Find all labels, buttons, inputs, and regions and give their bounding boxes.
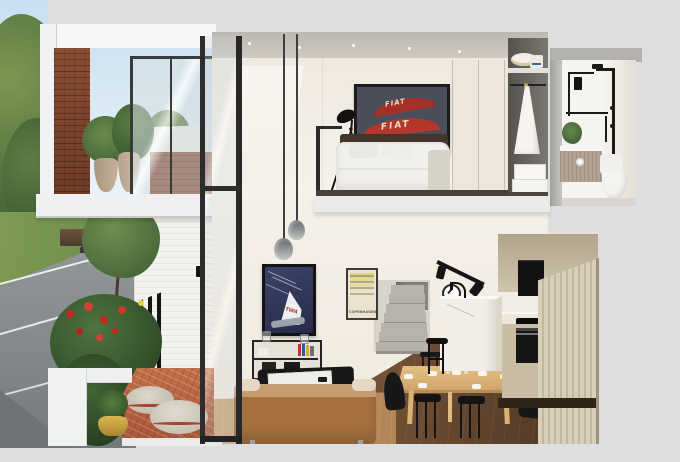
robe-bag-label — [532, 63, 541, 65]
balcony-door-mullion — [170, 56, 172, 198]
bed-throw — [428, 150, 450, 194]
robe-bag — [530, 55, 543, 68]
curtain-wall-glass — [205, 36, 237, 444]
place-setting-6 — [418, 383, 427, 388]
fluted-pantry — [538, 258, 599, 444]
pendant-cord-2 — [283, 34, 285, 240]
mezzanine-railing-post — [316, 126, 320, 196]
pouf-2-stripe — [153, 422, 205, 425]
wardrobe-door-seam-1 — [478, 60, 479, 196]
brass-pot — [98, 416, 128, 436]
place-setting-7 — [472, 384, 481, 389]
red-flower-1 — [66, 310, 74, 318]
kitchen-kickboard — [498, 398, 596, 408]
curtain-wall-mullion-right — [236, 36, 242, 444]
bedroom-ceiling — [212, 32, 548, 60]
balcony-brick-wall — [54, 48, 90, 198]
grass-plant — [96, 390, 128, 418]
sofa-foot-right — [358, 440, 363, 444]
hand-shower — [605, 116, 607, 142]
vanity-basin-top — [560, 146, 604, 151]
pendant-lamp-2 — [274, 238, 293, 260]
bar-stool-footring — [430, 358, 444, 360]
twa-poster: TWA — [262, 264, 316, 336]
grab-rail-horizontal — [568, 72, 594, 74]
wardrobe-doors — [452, 60, 509, 196]
bed-pillow-1 — [348, 143, 379, 159]
red-flower-2 — [84, 302, 93, 311]
downlight-3 — [352, 44, 355, 47]
curtain-wall-sill — [200, 436, 242, 442]
red-flower-6 — [96, 334, 103, 341]
book-spine-1 — [298, 344, 301, 356]
copenhagen-poster: COPENHAGEN — [346, 268, 378, 320]
twa-fuselage — [271, 317, 306, 329]
book-spine-2 — [302, 344, 305, 356]
island-bench — [440, 296, 502, 371]
courtyard-cut-wall — [48, 368, 87, 446]
dining-chair-near-1-legs — [416, 402, 440, 438]
copenhagen-poster-text: COPENHAGEN — [349, 311, 376, 315]
sofa-foot-left — [250, 440, 255, 444]
wardrobe-door-seam-2 — [504, 60, 505, 196]
sofa-arm-cushion-right — [352, 379, 376, 391]
shelving-mid-shelf — [252, 358, 318, 360]
dining-chair-near-2 — [458, 396, 485, 404]
book-spine-4 — [310, 346, 314, 356]
pendant-lamp-1 — [288, 220, 305, 240]
glass-jar-1 — [262, 331, 271, 342]
storage-box-1 — [514, 164, 546, 180]
curtain-wall-transom — [200, 186, 242, 191]
book-spine-3 — [306, 345, 309, 356]
grab-rail-vertical — [568, 74, 570, 116]
red-flower-3 — [100, 316, 108, 324]
shower-head — [592, 64, 603, 69]
shelf-paper-stack — [258, 348, 268, 356]
dining-chair-near-1 — [414, 394, 441, 402]
pendant-cord-1 — [296, 34, 298, 222]
curtain-wall-mullion-left — [200, 36, 205, 444]
twa-jet-streak-3 — [266, 284, 290, 295]
bathroom-plant — [562, 122, 582, 144]
downlight-4 — [408, 47, 411, 50]
red-flower-4 — [118, 306, 126, 314]
toilet-paper-roll — [576, 158, 584, 166]
robe-shelf — [508, 68, 548, 73]
balcony-floor-slab — [36, 194, 216, 218]
mezzanine-fascia — [314, 196, 550, 213]
place-setting-1 — [404, 374, 413, 379]
oven-handle — [516, 333, 538, 335]
bed-pillow-2 — [382, 143, 415, 160]
hanging-rod — [510, 84, 546, 86]
downlight-2 — [298, 46, 301, 49]
place-setting-4 — [478, 371, 487, 376]
towel-rail — [566, 112, 608, 114]
table-leg-centre — [448, 392, 452, 422]
facade-top-band — [40, 24, 216, 51]
bathroom-side-wall — [550, 60, 562, 206]
red-flower-7 — [112, 328, 118, 334]
downlight-1 — [248, 42, 251, 45]
shower-mixer-knob-1 — [610, 106, 614, 110]
dining-chair-near-2-legs — [460, 404, 484, 438]
downlight-5 — [458, 50, 461, 53]
shower-column — [612, 68, 615, 162]
yellow-flower — [138, 300, 144, 306]
red-flower-5 — [76, 328, 83, 335]
shower-speaker-box — [574, 77, 582, 90]
mezzanine-railing-rail — [316, 126, 342, 129]
glass-jar-2 — [300, 334, 309, 344]
apartment-cutaway-render: FIAT FIAT — [0, 0, 680, 462]
tray-camera-prop — [318, 377, 327, 382]
bathroom-floor — [562, 198, 636, 206]
shower-mixer-knob-2 — [610, 124, 614, 128]
copenhagen-poster-art — [350, 273, 374, 295]
island-tap-spout — [450, 282, 453, 290]
